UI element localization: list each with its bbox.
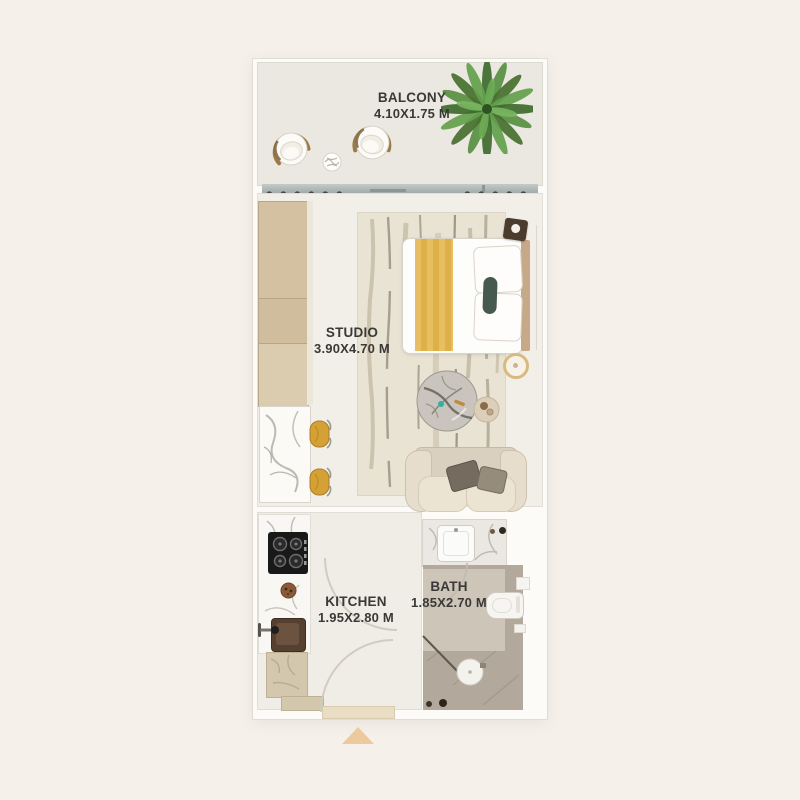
floor-plan-page: BALCONY 4.10X1.75 M [0, 0, 800, 800]
breakfast-counter [259, 406, 311, 503]
shower [420, 630, 490, 708]
studio-label: STUDIO 3.90X4.70 M [314, 325, 390, 357]
prep-bowl-icon [280, 582, 297, 599]
washbasin [437, 525, 475, 562]
bath-label: BATH 1.85X2.70 M [411, 579, 487, 611]
wall-line [536, 225, 537, 350]
kitchen-dims: 1.95X2.80 M [318, 610, 394, 626]
palm-plant-icon [441, 62, 533, 154]
cooktop [268, 532, 308, 574]
faucet-icon [257, 622, 281, 638]
coffee-table [416, 370, 478, 432]
base-cabinet [266, 652, 308, 698]
vanity-accessory [490, 529, 495, 534]
wardrobe [258, 201, 309, 300]
studio-dims: 3.90X4.70 M [314, 341, 390, 357]
sofa [405, 443, 525, 513]
bath-name: BATH [411, 579, 487, 595]
bath-dims: 1.85X2.70 M [411, 595, 487, 611]
floor-lamp-icon [503, 353, 529, 379]
studio-name: STUDIO [314, 325, 390, 341]
bar-stool-icon [309, 466, 333, 498]
headboard [521, 240, 530, 351]
basin-tap-icon [454, 528, 458, 532]
entrance-door-sill [322, 706, 395, 719]
tall-cabinet [258, 343, 309, 407]
double-bed [402, 238, 531, 353]
toilet [486, 592, 524, 619]
armchair-icon [345, 115, 401, 171]
vanity-accessory [499, 527, 506, 534]
nightstand [503, 218, 529, 242]
bed-pillow [473, 292, 523, 342]
bed-pillow [473, 245, 523, 294]
kitchen-label: KITCHEN 1.95X2.80 M [318, 594, 394, 626]
wall-niche [516, 577, 530, 590]
balcony-dims: 4.10X1.75 M [374, 106, 450, 122]
wall-niche [514, 624, 526, 633]
wardrobe [258, 298, 309, 345]
side-table [473, 396, 500, 423]
entrance-arrow-icon [342, 727, 374, 744]
accent-pillow [482, 277, 497, 314]
bed-runner [415, 239, 453, 351]
balcony-label: BALCONY 4.10X1.75 M [374, 90, 450, 122]
bar-stool-icon [309, 418, 333, 450]
wardrobe-door-strip [307, 201, 313, 405]
balcony-name: BALCONY [374, 90, 450, 106]
decor-ball-icon [321, 151, 343, 173]
kitchen-name: KITCHEN [318, 594, 394, 610]
base-cabinet [281, 696, 324, 711]
